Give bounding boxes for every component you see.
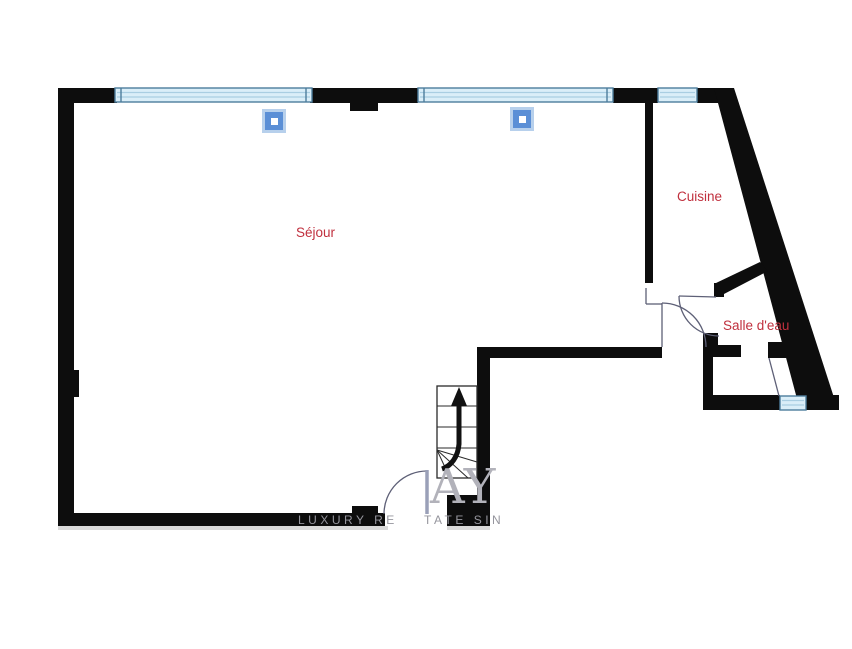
window-top-center [418,88,613,102]
wall-pilaster [74,370,79,397]
window-top-right [658,88,697,102]
floor-plan: Séjour Cuisine Salle d'eau AY LUXURY RE … [0,0,852,649]
bathroom-window [780,396,806,410]
watermark-monogram: AY [430,463,500,511]
column-marker [510,107,534,131]
watermark-caption-right: TATE SIN [424,513,504,527]
diagonal-exterior-wall [714,88,838,410]
room-label-sejour: Séjour [296,225,335,240]
watermark-caption-left: LUXURY RE [298,513,398,527]
window-top-left [115,88,312,102]
kitchen-divider-wall [645,103,653,283]
column-marker [262,109,286,133]
room-label-cuisine: Cuisine [677,189,722,204]
entry-door-swing [384,470,427,514]
room-label-salle-deau: Salle d'eau [723,318,789,333]
